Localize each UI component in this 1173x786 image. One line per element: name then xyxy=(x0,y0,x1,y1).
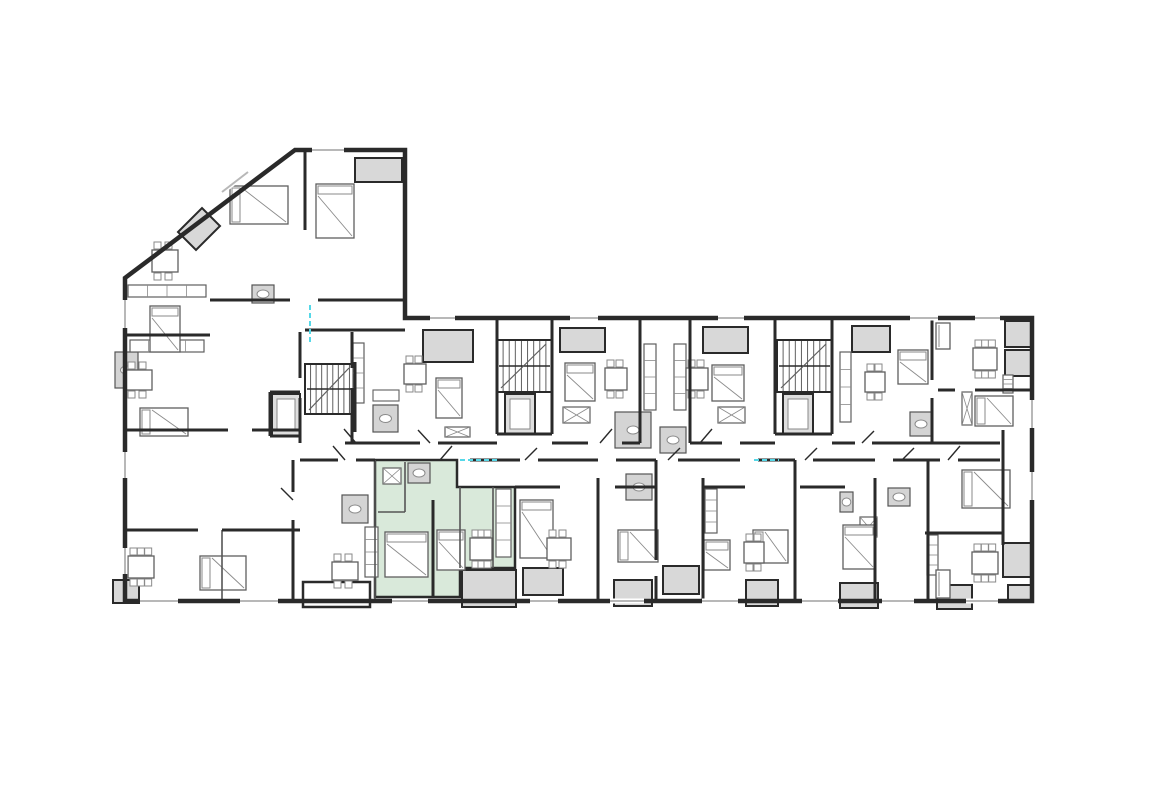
diagonal-balcony xyxy=(178,208,220,250)
floor-plan-canvas xyxy=(0,0,1173,786)
floor-plan-svg xyxy=(0,0,1173,786)
